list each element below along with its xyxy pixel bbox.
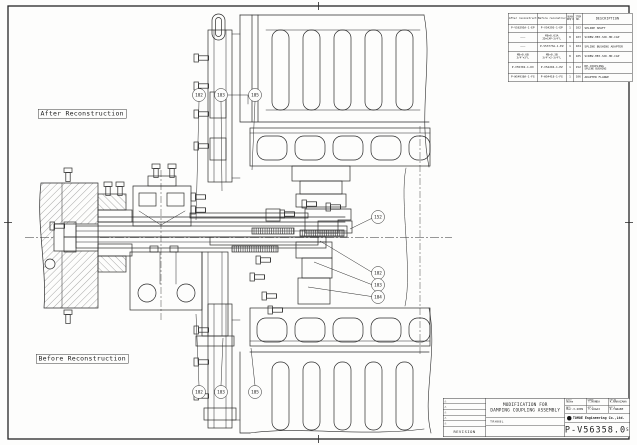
table-row: ——— P-V53773A-1-EZ 1 104 SPLINE BUSHING … — [508, 43, 632, 52]
revision-column: △ △ △ △ △ REVISION — [444, 399, 487, 437]
date-field: DATE Mar-3-2009 — [565, 406, 587, 413]
spline-bushing-adapter-before — [298, 278, 330, 304]
company-name: TOMOE Engineering Co.,Ltd. — [573, 416, 625, 420]
drawing-title: MODIFICATION FOR DAMPING COUPLING ASSEMB… — [486, 399, 564, 418]
col-header-after: After reconstruction — [508, 13, 537, 24]
approved-field-1: APP'D T.SUGAI — [587, 406, 609, 413]
after-coupling-right — [292, 166, 352, 236]
balloon-102-bottom: 102 — [193, 314, 206, 399]
table-row: ——— M8×0.63A2D×CAP-3/4"L 8 103 SCREW-HEX… — [508, 33, 632, 43]
revision-label: REVISION — [444, 427, 486, 437]
break-line-mid — [404, 168, 408, 306]
revision-triangle-icon: △ — [445, 405, 447, 409]
drawn-field: DRAWN T.HONDA — [587, 399, 609, 406]
svg-text:105: 105 — [251, 93, 259, 99]
balloon-152-mid: 152 — [350, 211, 385, 230]
bolt-slot-band-top — [250, 128, 430, 166]
housing-bottom-section — [240, 308, 432, 433]
bolt-slot-band-bottom — [250, 308, 430, 346]
col-header-quan: QUAN REQ'D — [566, 13, 574, 24]
svg-text:152: 152 — [374, 215, 382, 221]
table-row: P-W54938A-1-FG P-W54418-1-FG 1 106 ADAPT… — [508, 73, 632, 82]
balloon-102-top: 102 — [193, 89, 206, 221]
col-header-description: DESCRIPTION — [583, 13, 633, 24]
blank-cell — [486, 426, 564, 437]
drawing-number: P-V56358.0S — [565, 423, 630, 437]
svg-text:102: 102 — [195, 93, 203, 99]
reference-code: TRH08L — [486, 418, 564, 427]
drawing-sheet: 102 103 105 152 102 103 — [0, 0, 637, 445]
balloon-103-bottom: 103 — [215, 338, 228, 399]
company-logo-icon — [567, 416, 572, 421]
break-line-right-top — [424, 15, 429, 167]
svg-text:104: 104 — [374, 295, 382, 301]
title-block: △ △ △ △ △ REVISION MODIFICATION FOR DAMP… — [443, 398, 630, 437]
revision-triangle-icon: △ — [445, 399, 447, 403]
before-reconstruction-label: Before Reconstruction — [36, 354, 128, 364]
balloon-103-top: 103 — [215, 89, 228, 192]
approved-field-2: APP'D K.TANABE — [608, 406, 629, 413]
svg-text:103: 103 — [217, 390, 225, 396]
checked-field: CHECKD K.NAKAZAWA — [608, 399, 629, 406]
title-column: MODIFICATION FOR DAMPING COUPLING ASSEMB… — [486, 399, 565, 437]
balloon-105-top: 105 — [249, 89, 262, 171]
balloon-105-bottom: 105 — [249, 348, 262, 399]
coupling-before — [64, 237, 332, 346]
col-header-item: ITEM NO. — [574, 13, 583, 24]
leader-connector — [228, 95, 248, 104]
drawing-number-suffix: S — [626, 428, 629, 433]
revision-triangle-icon: △ — [445, 422, 447, 426]
col-header-before: Before reconstruction — [537, 13, 566, 24]
title-block-right: SCALE None DRAWN T.HONDA CHECKD K.NAKAZA… — [565, 399, 630, 437]
balloon-102-cluster: 102 — [320, 241, 385, 280]
revision-triangle-icon: △ — [445, 416, 447, 420]
revision-triangle-icon: △ — [445, 411, 447, 415]
company-field: TOMOE Engineering Co.,Ltd. — [565, 414, 630, 424]
spline-teeth — [232, 246, 278, 252]
table-row: P-V55302-1-DX P-V54294-1-EZ 1 152 RE-COU… — [508, 62, 632, 73]
break-line-bottom — [250, 429, 424, 433]
after-reconstruction-label: After Reconstruction — [38, 109, 126, 119]
svg-text:102: 102 — [374, 271, 382, 277]
parts-table: After reconstruction Before reconstructi… — [508, 13, 632, 82]
svg-text:103: 103 — [217, 93, 225, 99]
table-row: M8×0.6B3/4"×3"L M8×0.3B3/4"×2-3/4"L 8 10… — [508, 51, 632, 62]
svg-text:105: 105 — [251, 390, 259, 396]
scale-field: SCALE None — [565, 399, 587, 406]
svg-text:103: 103 — [374, 283, 382, 289]
svg-text:102: 102 — [195, 390, 203, 396]
bell-flange-bottom — [194, 304, 240, 428]
spline-teeth — [252, 228, 294, 234]
table-row: P-V56295A-1-EP P-V54295-1-EP 1 102 SPLIN… — [508, 24, 632, 33]
left-flange-block — [40, 168, 132, 324]
